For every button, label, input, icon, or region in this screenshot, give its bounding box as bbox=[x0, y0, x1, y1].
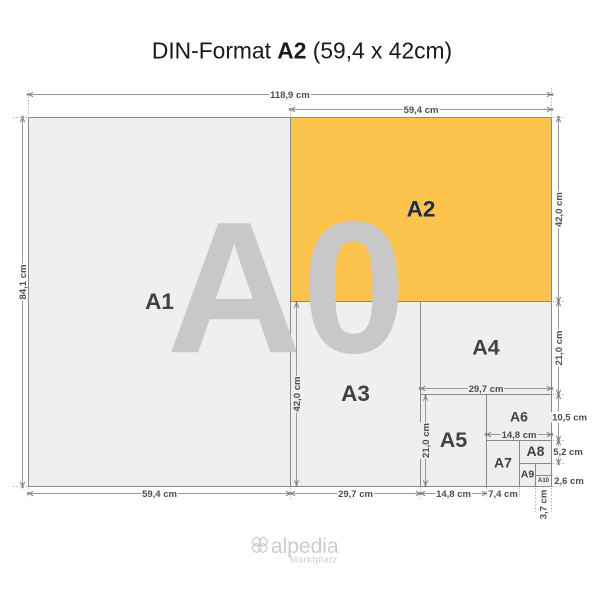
svg-text:7,4 cm: 7,4 cm bbox=[488, 489, 518, 500]
svg-text:118,9 cm: 118,9 cm bbox=[270, 90, 310, 101]
svg-text:A0: A0 bbox=[167, 182, 407, 392]
svg-text:A8: A8 bbox=[527, 443, 545, 459]
svg-text:14,8 cm: 14,8 cm bbox=[502, 430, 537, 441]
svg-text:A9: A9 bbox=[521, 469, 535, 481]
svg-text:42,0 cm: 42,0 cm bbox=[554, 192, 565, 227]
svg-text:21,0 cm: 21,0 cm bbox=[554, 331, 565, 366]
svg-text:59,4 cm: 59,4 cm bbox=[404, 105, 439, 116]
svg-text:A2: A2 bbox=[407, 196, 436, 221]
svg-text:14,8 cm: 14,8 cm bbox=[436, 489, 471, 500]
svg-text:DIN-Format A2 (59,4 x 42cm): DIN-Format A2 (59,4 x 42cm) bbox=[152, 37, 452, 63]
svg-text:2,6 cm: 2,6 cm bbox=[554, 476, 584, 487]
svg-text:Marktplatz: Marktplatz bbox=[290, 555, 338, 565]
svg-text:A7: A7 bbox=[494, 454, 512, 470]
svg-text:A3: A3 bbox=[341, 381, 370, 406]
svg-text:10,5 cm: 10,5 cm bbox=[552, 413, 587, 424]
svg-text:21,0 cm: 21,0 cm bbox=[421, 423, 432, 458]
svg-text:29,7 cm: 29,7 cm bbox=[469, 384, 504, 395]
svg-text:59,4 cm: 59,4 cm bbox=[142, 489, 177, 500]
svg-text:A6: A6 bbox=[510, 408, 528, 424]
svg-text:A4: A4 bbox=[472, 336, 500, 360]
svg-text:A1: A1 bbox=[145, 289, 174, 314]
svg-text:5,2 cm: 5,2 cm bbox=[553, 447, 583, 458]
svg-text:84,1 cm: 84,1 cm bbox=[18, 265, 29, 300]
svg-text:A10: A10 bbox=[538, 478, 550, 484]
svg-text:42,0 cm: 42,0 cm bbox=[292, 377, 303, 412]
svg-text:A5: A5 bbox=[440, 428, 468, 452]
svg-text:29,7 cm: 29,7 cm bbox=[338, 489, 373, 500]
svg-text:3,7 cm: 3,7 cm bbox=[539, 490, 550, 520]
